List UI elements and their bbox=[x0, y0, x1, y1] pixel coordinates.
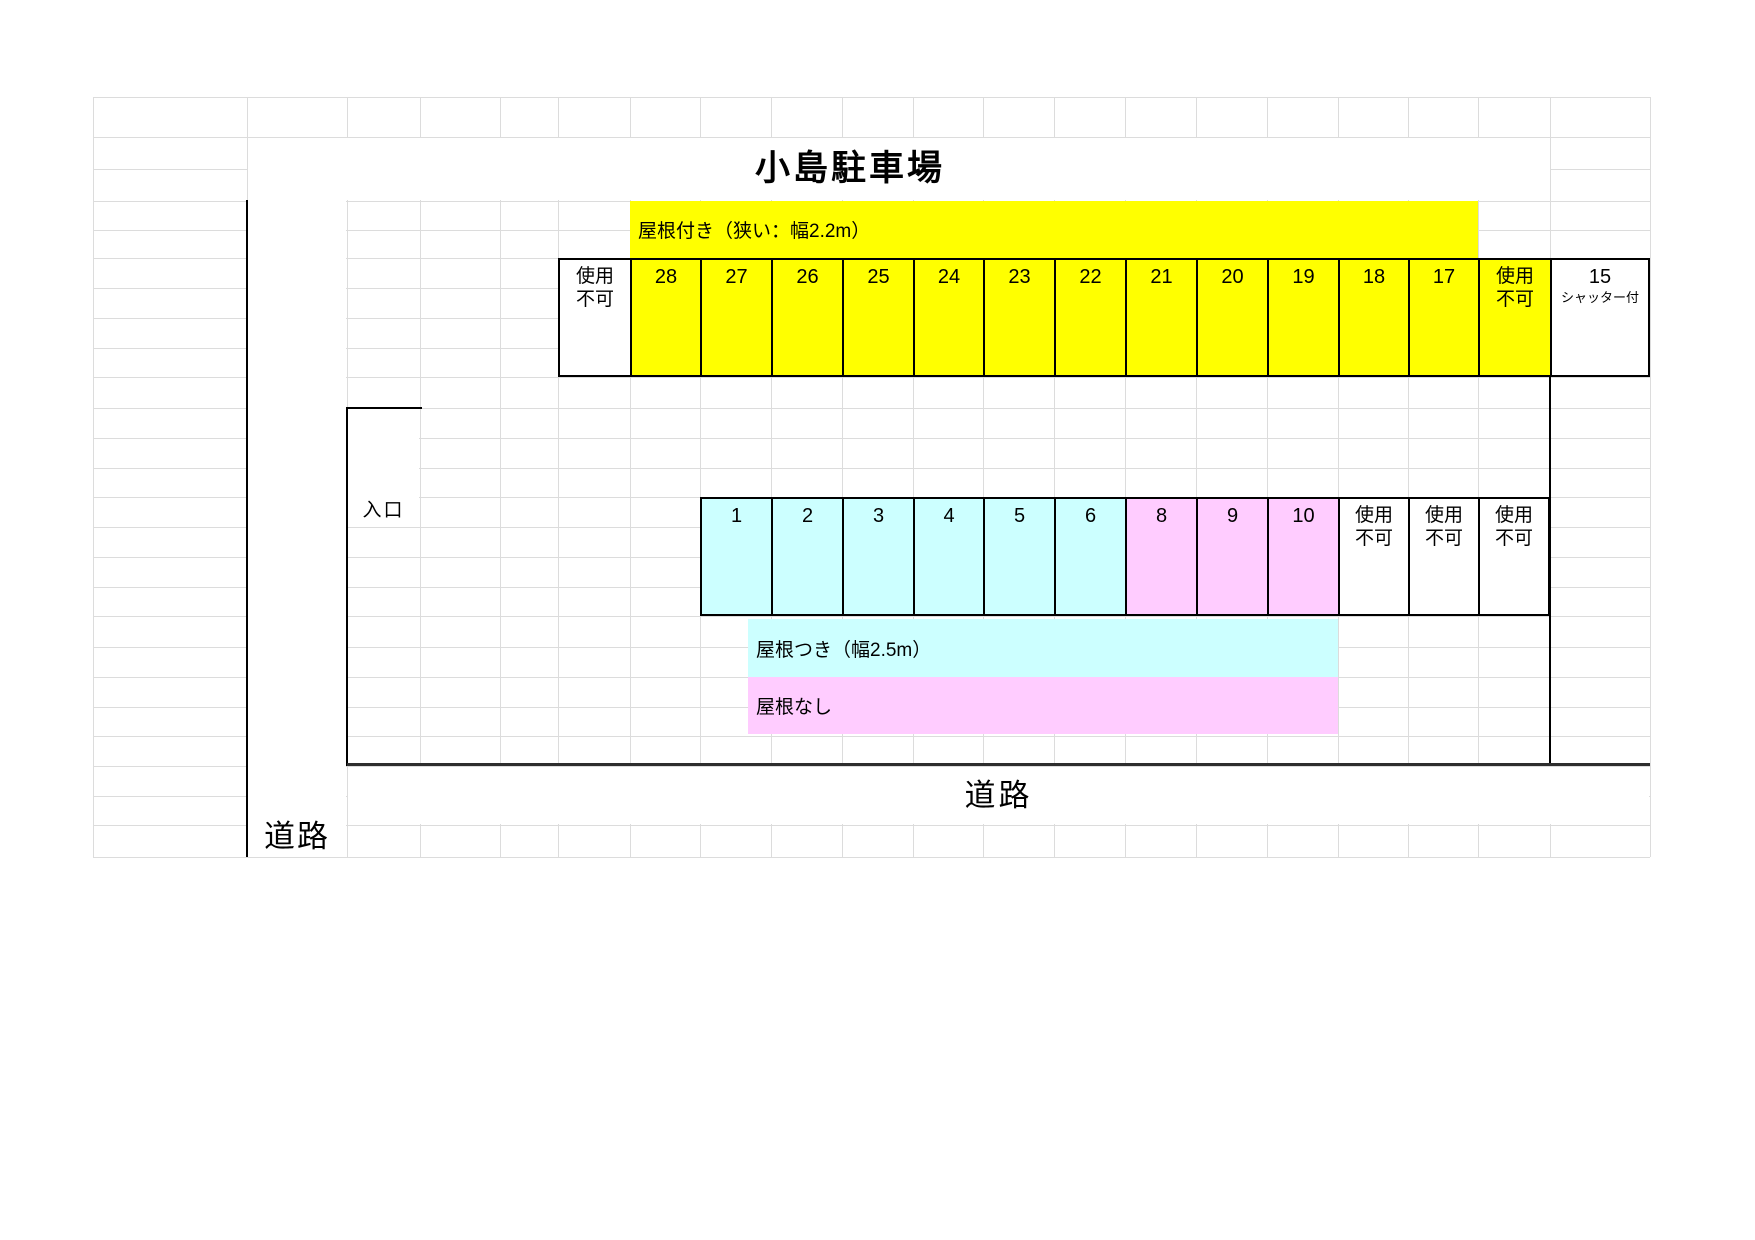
parking-map-sheet: { "colors": { "yellow": "#FFFF00", "cyan… bbox=[0, 0, 1755, 1240]
parking-space-label: 15 bbox=[1589, 265, 1611, 289]
parking-space-label: 10 bbox=[1292, 504, 1314, 528]
legend-uncovered-label: 屋根なし bbox=[756, 692, 832, 719]
parking-space-label: 17 bbox=[1433, 265, 1455, 289]
parking-space-label: 5 bbox=[1014, 504, 1025, 528]
top-row-cell-26: 26 bbox=[771, 258, 842, 377]
parking-space-label: 18 bbox=[1363, 265, 1385, 289]
top-row-cell-19: 19 bbox=[1267, 258, 1338, 377]
parking-area-bottom-line bbox=[347, 763, 1650, 766]
grid-row-line bbox=[93, 97, 1650, 98]
road-label-left: 道路 bbox=[247, 817, 347, 857]
middle-row-cell-2: 2 bbox=[771, 497, 842, 616]
grid-column-line bbox=[420, 97, 421, 857]
entrance-label: 入口 bbox=[347, 496, 420, 526]
top-row-cell-20: 20 bbox=[1196, 258, 1267, 377]
grid-column-line bbox=[93, 97, 94, 857]
legend-uncovered-band: 屋根なし bbox=[748, 677, 1338, 734]
top-row-cell-25: 25 bbox=[842, 258, 913, 377]
legend-covered-band: 屋根つき（幅2.5m） bbox=[748, 619, 1338, 677]
middle-row-cell-使用不可: 使用不可 bbox=[1408, 497, 1478, 616]
parking-space-label: 3 bbox=[873, 504, 884, 528]
grid-row-line bbox=[93, 857, 1650, 858]
parking-space-label: 6 bbox=[1085, 504, 1096, 528]
parking-space-label: 24 bbox=[938, 265, 960, 289]
page-title: 小島駐車場 bbox=[400, 139, 1300, 199]
top-row-cell-使用不可: 使用不可 bbox=[558, 258, 630, 377]
middle-row-cell-使用不可: 使用不可 bbox=[1338, 497, 1408, 616]
middle-row-cell-使用不可: 使用不可 bbox=[1478, 497, 1550, 616]
parking-space-label: 25 bbox=[867, 265, 889, 289]
parking-space-label: 使用不可 bbox=[1493, 265, 1537, 311]
parking-space-label: 19 bbox=[1292, 265, 1314, 289]
parking-area-top-step-line bbox=[346, 407, 422, 409]
top-row-cell-17: 17 bbox=[1408, 258, 1478, 377]
middle-row-cell-5: 5 bbox=[983, 497, 1054, 616]
merged-cell-mask bbox=[248, 201, 346, 856]
parking-space-label: 2 bbox=[802, 504, 813, 528]
parking-space-label: 9 bbox=[1227, 504, 1238, 528]
legend-covered-label: 屋根つき（幅2.5m） bbox=[756, 635, 931, 662]
top-row-cell-23: 23 bbox=[983, 258, 1054, 377]
parking-space-label: 使用不可 bbox=[1492, 504, 1536, 550]
middle-row-cell-3: 3 bbox=[842, 497, 913, 616]
covered-narrow-banner: 屋根付き（狭い：幅2.2m） bbox=[630, 201, 1478, 258]
grid-column-line bbox=[1478, 97, 1479, 857]
parking-space-label: 20 bbox=[1221, 265, 1243, 289]
parking-space-label: 使用不可 bbox=[1422, 504, 1466, 550]
top-row-cell-22: 22 bbox=[1054, 258, 1125, 377]
middle-row-cell-6: 6 bbox=[1054, 497, 1125, 616]
covered-narrow-banner-label: 屋根付き（狭い：幅2.2m） bbox=[638, 216, 870, 243]
grid-column-line bbox=[558, 97, 559, 857]
top-row-cell-15: 15シャッター付 bbox=[1550, 258, 1650, 377]
grid-column-line bbox=[500, 97, 501, 857]
parking-space-label: 使用不可 bbox=[1352, 504, 1396, 550]
middle-row-cell-10: 10 bbox=[1267, 497, 1338, 616]
middle-row-cell-8: 8 bbox=[1125, 497, 1196, 616]
parking-space-label: 23 bbox=[1008, 265, 1030, 289]
parking-space-label: 27 bbox=[725, 265, 747, 289]
parking-space-label: 26 bbox=[796, 265, 818, 289]
top-row-cell-24: 24 bbox=[913, 258, 983, 377]
top-row-cell-18: 18 bbox=[1338, 258, 1408, 377]
parking-space-label: 22 bbox=[1079, 265, 1101, 289]
parking-space-label: 1 bbox=[731, 504, 742, 528]
parking-space-label: 使用不可 bbox=[573, 265, 617, 311]
top-row-cell-28: 28 bbox=[630, 258, 700, 377]
top-row-cell-21: 21 bbox=[1125, 258, 1196, 377]
parking-space-label: 21 bbox=[1150, 265, 1172, 289]
parking-space-sublabel: シャッター付 bbox=[1561, 289, 1639, 306]
road-label-bottom: 道路 bbox=[348, 769, 1649, 823]
parking-area-right-line bbox=[1549, 377, 1551, 766]
top-row-cell-27: 27 bbox=[700, 258, 771, 377]
road-left-boundary-line bbox=[246, 200, 248, 857]
parking-space-label: 8 bbox=[1156, 504, 1167, 528]
middle-row-cell-4: 4 bbox=[913, 497, 983, 616]
grid-column-line bbox=[1650, 97, 1651, 857]
top-row-cell-使用不可: 使用不可 bbox=[1478, 258, 1550, 377]
parking-area-left-line bbox=[346, 408, 348, 766]
parking-space-label: 28 bbox=[655, 265, 677, 289]
middle-row-cell-1: 1 bbox=[700, 497, 771, 616]
middle-row-cell-9: 9 bbox=[1196, 497, 1267, 616]
parking-space-label: 4 bbox=[943, 504, 954, 528]
